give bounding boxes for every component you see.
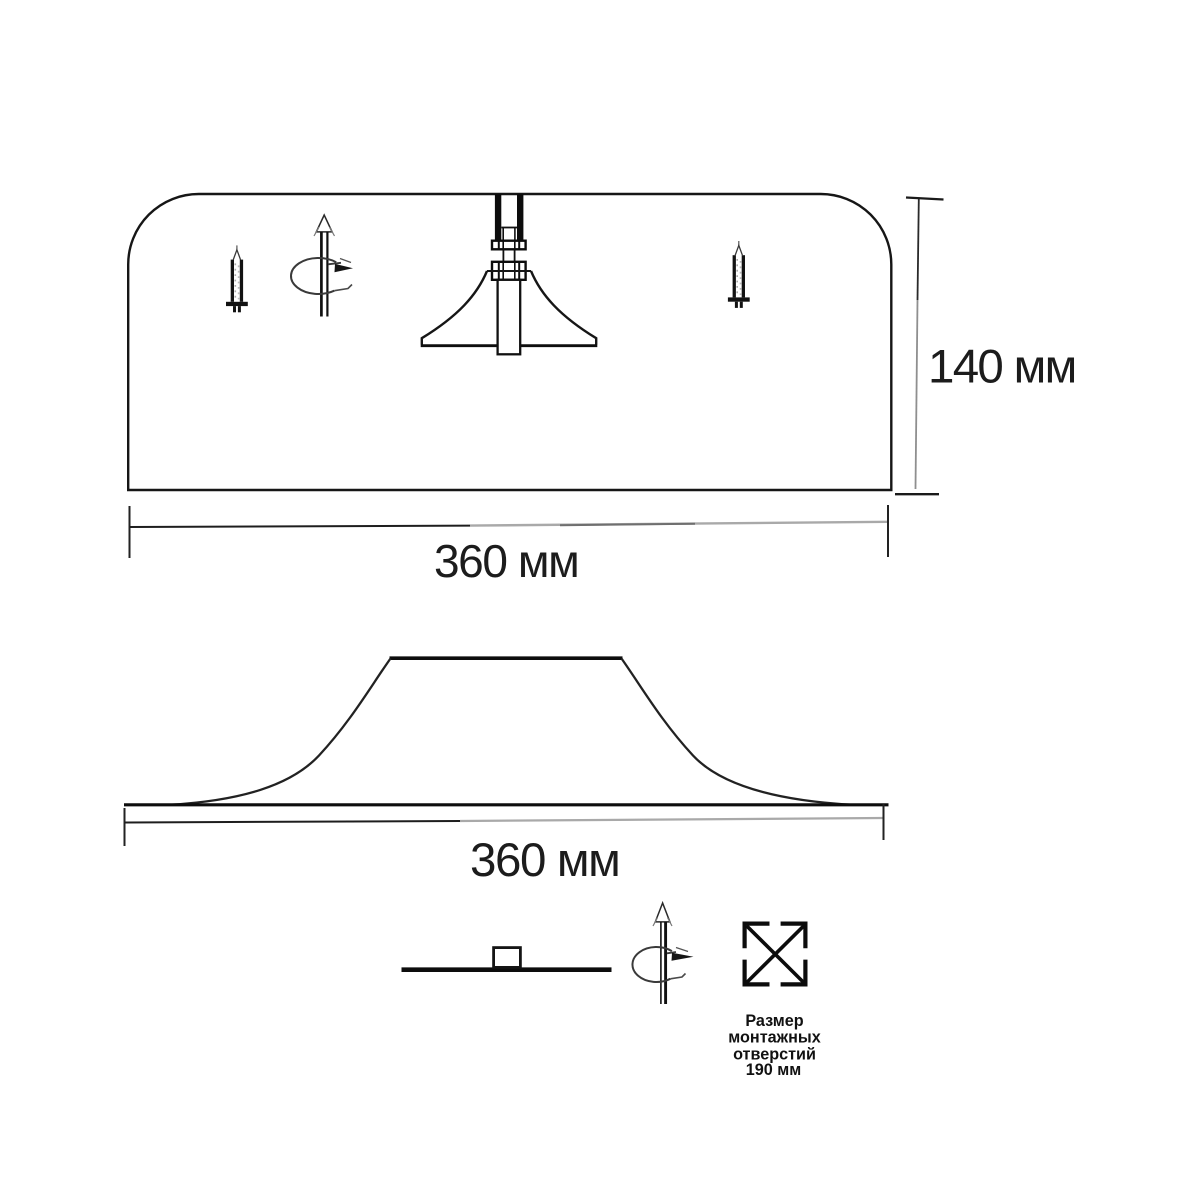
svg-text:360 мм: 360 мм bbox=[470, 834, 619, 887]
svg-text:140 мм: 140 мм bbox=[928, 341, 1076, 394]
svg-text:монтажных: монтажных bbox=[728, 1029, 820, 1047]
svg-text:Размер: Размер bbox=[745, 1012, 803, 1030]
svg-text:190 мм: 190 мм bbox=[746, 1061, 801, 1079]
svg-text:360 мм: 360 мм bbox=[434, 535, 578, 587]
